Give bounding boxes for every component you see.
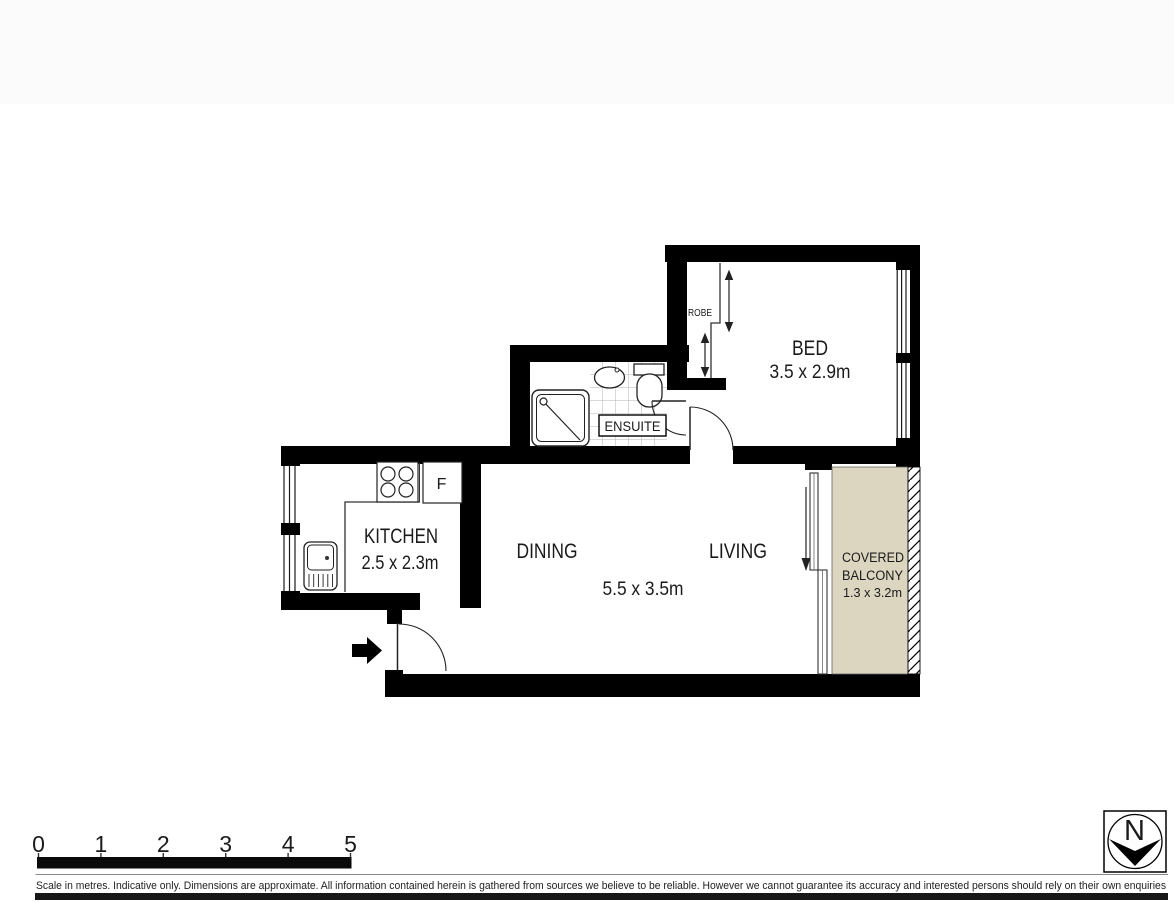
shower-head-icon bbox=[540, 398, 547, 405]
disclaimer-text: Scale in metres. Indicative only. Dimens… bbox=[36, 880, 1166, 892]
footer-bar bbox=[35, 893, 1168, 900]
wall-main-top-left bbox=[281, 446, 690, 464]
wall-ensuite-left bbox=[510, 362, 530, 448]
cooktop-outline bbox=[377, 462, 418, 502]
shower-tray-outer bbox=[532, 390, 589, 446]
ensuite-label: ENSUITE bbox=[605, 418, 661, 434]
fridge: F bbox=[423, 462, 462, 503]
floorplan-page: ENSUITE F bbox=[0, 0, 1174, 902]
cooktop bbox=[377, 462, 418, 502]
top-band bbox=[0, 0, 1174, 104]
wall-kitchen-divider bbox=[460, 463, 481, 608]
basin-tap bbox=[615, 368, 619, 372]
sink bbox=[304, 542, 337, 590]
floorplan-svg: ENSUITE F bbox=[0, 0, 1174, 902]
scale-bar-line bbox=[37, 857, 352, 869]
wall-balcony-door-head bbox=[805, 446, 832, 470]
wall-ensuite-top bbox=[510, 345, 689, 362]
wall-bottom bbox=[403, 674, 920, 697]
balcony-label-line1: COVERED bbox=[842, 550, 904, 565]
living-dining-dims: 5.5 x 3.5m bbox=[603, 578, 684, 600]
bed-room-dims: 3.5 x 2.9m bbox=[770, 361, 851, 383]
wall-right-top-fill bbox=[896, 245, 920, 270]
shower bbox=[532, 390, 589, 446]
wall-robe-bottom bbox=[680, 378, 726, 390]
toilet-bowl bbox=[637, 374, 662, 407]
wall-entry-jamb bbox=[387, 610, 402, 624]
basin bbox=[595, 367, 625, 388]
balcony-hatch-edge bbox=[908, 467, 920, 674]
wall-left-mid bbox=[281, 523, 300, 535]
wall-bedroom-top bbox=[665, 245, 920, 262]
wall-kitchen-bottom bbox=[281, 593, 420, 610]
basin-bowl bbox=[595, 367, 625, 388]
bed-room-label: BED bbox=[792, 337, 828, 360]
kitchen-label: KITCHEN bbox=[364, 525, 438, 548]
wall-left-bottom bbox=[281, 591, 300, 610]
fridge-label: F bbox=[437, 476, 447, 493]
wall-entry-stub bbox=[385, 670, 403, 697]
balcony-label-line2: BALCONY bbox=[842, 568, 903, 583]
wall-right-mid-fill bbox=[896, 353, 920, 363]
kitchen-dims: 2.5 x 2.3m bbox=[362, 552, 439, 574]
balcony-dims: 1.3 x 3.2m bbox=[843, 586, 902, 600]
sink-tap bbox=[325, 556, 329, 560]
north-letter: N bbox=[1124, 815, 1145, 847]
wall-bedroom-left bbox=[667, 262, 687, 390]
living-label: LIVING bbox=[709, 540, 767, 563]
north-indicator: N bbox=[1104, 811, 1166, 872]
dining-label: DINING bbox=[517, 540, 578, 563]
robe-label: ROBE bbox=[688, 307, 712, 319]
wall-left-top bbox=[281, 446, 300, 466]
wall-right-bottom-fill bbox=[896, 438, 920, 467]
